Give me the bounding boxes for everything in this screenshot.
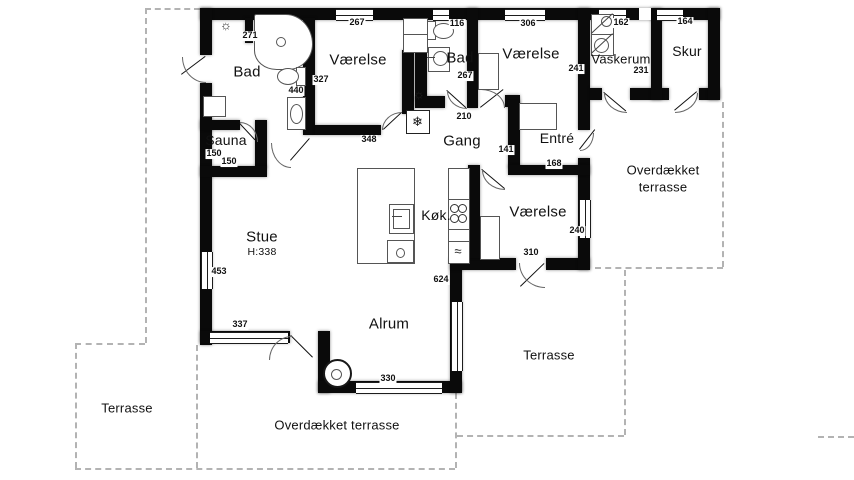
window-624 <box>451 302 463 371</box>
measurement-453: 453 <box>210 267 227 277</box>
measurement-267b: 267 <box>456 71 473 81</box>
room-label-gang: Gang <box>443 133 481 150</box>
island-sink-tap <box>392 216 402 217</box>
room-label-stue-height: H:338 <box>247 246 276 258</box>
room-label-vaerelse2: Værelse <box>502 46 559 63</box>
measurement-241: 241 <box>567 64 584 74</box>
dashed-terrace-right-bottom <box>457 435 624 437</box>
measurement-150b: 150 <box>220 157 237 167</box>
measurement-310: 310 <box>522 248 539 258</box>
wall-left-upper <box>200 8 212 55</box>
dashed-west-strip-top <box>145 8 200 10</box>
ventilation-snowflake-icon: ❄ <box>412 114 423 130</box>
room-label-vaerelse1: Værelse <box>329 52 386 69</box>
wall-sauna-bottom <box>200 166 267 177</box>
room-label-bad2: Bad <box>446 50 473 67</box>
room-label-entre: Entré <box>540 130 574 146</box>
room-label-alrum: Alrum <box>369 316 409 333</box>
room-label-stue: Stue <box>246 229 278 246</box>
door-skur-swing <box>675 93 698 113</box>
door-entrance-west-swing <box>182 57 206 83</box>
washbasin-bad1-bowl <box>290 104 303 124</box>
measurement-116: 116 <box>449 19 466 29</box>
door-stue-terrace <box>290 335 313 358</box>
washbasin-bad2-tap <box>427 57 435 58</box>
lamp-icon-bad1: ☼ <box>220 18 232 33</box>
measurement-327: 327 <box>312 75 329 85</box>
room-label-bad1: Bad <box>233 64 260 81</box>
wall-v1-right <box>402 50 414 114</box>
measurement-240: 240 <box>568 226 585 236</box>
closet-vaerelse2 <box>478 53 499 90</box>
room-label-terrasse-left: Terrasse <box>101 401 152 416</box>
dashed-far-right <box>818 436 854 438</box>
wall-annex-bottom-a <box>590 88 602 100</box>
measurement-271: 271 <box>241 31 258 41</box>
toilet-bowl-bad1 <box>277 68 299 85</box>
measurement-168: 168 <box>545 159 562 169</box>
dashed-east-terrace-bottom <box>595 267 723 269</box>
door-vaerelse2-swing <box>481 89 505 108</box>
door-vaerelse1-swing <box>382 112 402 130</box>
measurement-267a: 267 <box>348 18 365 28</box>
room-label-kokken: Køk. <box>421 207 451 223</box>
door-vaerelse3-swing <box>482 170 505 190</box>
entre-closet <box>519 103 557 130</box>
room-label-sauna: Sauna <box>205 132 246 148</box>
wall-annex-bottom-b <box>630 88 669 100</box>
dashed-terrace-left-top <box>75 343 145 345</box>
door-stue-passage <box>290 138 310 161</box>
door-stue-passage-swing <box>271 143 291 168</box>
island-sink-basin <box>393 209 410 229</box>
measurement-210: 210 <box>455 112 472 122</box>
wall-annex-right <box>708 8 720 100</box>
room-label-vaerelse3: Værelse <box>509 204 566 221</box>
room-label-overdaekket-east-1: Overdækket <box>627 163 700 178</box>
wall-sauna-top <box>200 120 240 130</box>
wall-joint-gap <box>639 8 651 20</box>
kitchen-counter-1 <box>448 168 470 201</box>
dashed-terrace-left-divider <box>196 345 198 468</box>
stove-burner-4 <box>458 214 467 223</box>
measurement-624: 624 <box>432 275 449 285</box>
dashed-terrace-bottom <box>75 468 455 470</box>
dashed-west-strip <box>145 8 147 343</box>
floor-plan: ≈ ☼ ☼ ❄ Bad Værelse Bad Værelse Vaskerum… <box>0 0 854 480</box>
shelf-bad1 <box>203 96 226 117</box>
window-330 <box>356 382 442 394</box>
stove-burner-2 <box>458 204 467 213</box>
dashed-terrace-left-side <box>75 343 77 468</box>
room-label-overdaekket-east-2: terrasse <box>639 180 688 195</box>
dashed-covered-terrace-right <box>455 393 457 468</box>
measurement-162: 162 <box>612 18 629 28</box>
wall-vaskerum-skur <box>651 8 662 100</box>
room-label-overdaekket-bottom: Overdækket terrasse <box>274 418 399 433</box>
dashed-terrace-right-side <box>624 270 626 435</box>
lamp-icon-gang: ☼ <box>413 87 425 102</box>
oven-waves-icon: ≈ <box>454 244 461 259</box>
door-entre-terrace-swing <box>580 133 594 151</box>
wardrobe-vaerelse3 <box>480 216 500 260</box>
measurement-231: 231 <box>632 66 649 76</box>
wood-stove-inner <box>331 369 342 380</box>
measurement-348: 348 <box>360 135 377 145</box>
door-vaskerum-swing <box>604 93 627 113</box>
door-bad2-swing <box>447 91 467 109</box>
measurement-337: 337 <box>231 320 248 330</box>
island-dishwasher-glyph <box>396 248 405 258</box>
measurement-306: 306 <box>519 19 536 29</box>
wall-sauna-right <box>255 120 267 168</box>
measurement-330: 330 <box>379 374 396 384</box>
measurement-141: 141 <box>497 145 514 155</box>
bathtub-drain <box>276 37 286 47</box>
room-label-skur: Skur <box>672 43 702 59</box>
dashed-east-terrace-right <box>722 102 724 267</box>
window-116 <box>433 9 449 21</box>
measurement-164: 164 <box>676 17 693 27</box>
closet-vaerelse1-b <box>403 34 428 53</box>
measurement-440: 440 <box>287 86 304 96</box>
room-label-terrasse-right: Terrasse <box>523 348 574 363</box>
